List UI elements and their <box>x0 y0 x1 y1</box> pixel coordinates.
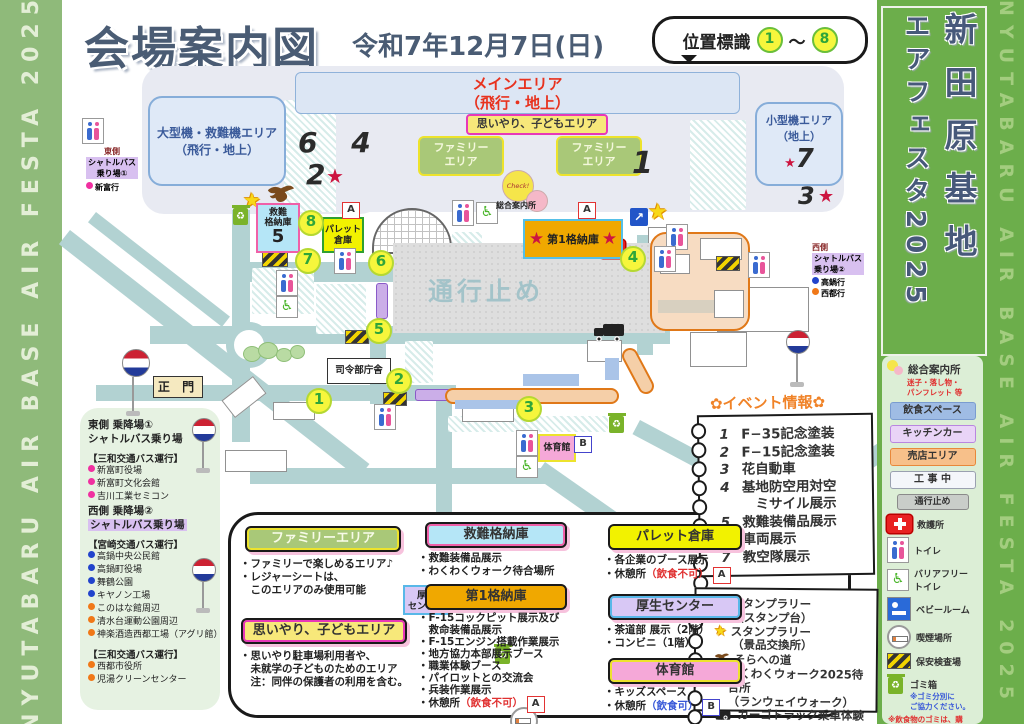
large-area-line2: （飛行・地上） <box>150 141 284 158</box>
badge-a: A <box>342 202 360 219</box>
marker-range-end: 8 <box>812 27 838 53</box>
family-line1: ファミリー <box>558 141 640 155</box>
food-trash-note: ※飲食物のゴミは、購 入されたお店で回収し ております。 <box>888 715 977 724</box>
barrier-free-row: ♿ バリアフリートイレ <box>887 567 978 593</box>
family-area-label: ファミリー エリア <box>556 136 642 176</box>
west-panel-title2: シャトルバス乗り場 <box>88 519 187 531</box>
legend-item: 未就学の子どものためのエリア <box>240 663 398 676</box>
festival-map-poster: NYUTABARU AIR BASE AIR FESTA 2025 会場案内図 … <box>0 0 1024 724</box>
legend-pallet-title: パレット倉庫 <box>608 524 742 550</box>
legend-item-rest: ・休憩所（飲食可） B <box>604 699 720 716</box>
toilet-icon <box>452 200 474 226</box>
truck-icon <box>592 324 624 342</box>
position-marker-6: 6 <box>368 250 394 276</box>
family-line1: ファミリー <box>420 141 502 155</box>
east-shuttle-label: 東側 シャトルバス 乗り場① 新富行 <box>86 146 138 193</box>
main-area-line1: メインエリア <box>296 75 739 94</box>
legend-item: ・F-15コックピット展示及び <box>418 612 559 625</box>
bus-stop-item: 清水台運動公園周辺 <box>88 616 212 629</box>
toilet-icon <box>654 246 676 272</box>
right-edge-text: NYUTABARU AIR BASE AIR FESTA 2025 <box>995 0 1017 724</box>
security-row: 保安検査場 <box>887 653 978 669</box>
gym-box: 体育館 <box>538 434 576 462</box>
main-gate-box: 正 門 <box>153 376 203 398</box>
small-aircraft-area-box: 小型機エリア （地上） ★7 <box>755 102 843 186</box>
banner-title: 新田原基地 エアフェスタ2025 <box>884 12 982 348</box>
road-closed-text: 通行止め <box>428 272 544 308</box>
legend-kousei-title: 厚生センター <box>608 594 742 620</box>
event-info-box: 1F−35記念塗装 2F−15記念塗装 3花自動車 4基地防空用対空 ミサイル展… <box>697 413 875 577</box>
legend-item: ・F-15エンジン搭載作業展示 <box>418 636 559 649</box>
event-info-title: ✿イベント情報✿ <box>706 391 829 414</box>
rescue-number: 5 <box>258 228 298 246</box>
event-item: 4基地防空用対空 <box>718 477 866 497</box>
first-aid-icon <box>887 515 912 533</box>
building <box>690 332 747 367</box>
position-marker-legend-bubble: 位置標識 1 ～ 8 <box>652 16 868 64</box>
legend-item-rest: ・休憩所（飲食不可） A <box>418 696 545 713</box>
legend-item: ・キッズスペース <box>604 686 687 699</box>
legend-item: ・ファミリーで楽しめるエリア♪ <box>240 558 393 571</box>
shop-area-chip: 売店エリア <box>890 448 976 466</box>
info-office-row: 総合案内所 <box>887 360 978 378</box>
legend-item: 救命装備品展示 <box>418 624 502 637</box>
apron-hatch <box>690 120 746 210</box>
rescue-line1: 救難 <box>258 208 298 218</box>
building-annex <box>658 300 714 313</box>
east-dest: 新富行 <box>86 182 138 193</box>
position-marker-label: 位置標識 <box>683 28 751 53</box>
map-number-1: 1 <box>632 146 653 181</box>
legend-item: ・地方協力本部展示ブース <box>418 648 543 661</box>
small-area-line1: 小型機エリア <box>757 112 841 128</box>
toilet-row: トイレ <box>887 537 978 563</box>
legend-item: ・パイロットとの交流会 <box>418 672 533 685</box>
bus-stop-item: 児湯クリーンセンター <box>88 674 212 687</box>
bus-stop-sign <box>122 349 144 416</box>
toilet-icon <box>334 248 356 274</box>
hazard-stripe <box>716 256 740 271</box>
legend-item: ・レジャーシートは、 <box>240 571 344 584</box>
legend-item: ・兵装作業展示 <box>418 684 492 697</box>
bus-stop-item: 西都市役所 <box>88 661 212 674</box>
kitchen-car-chip: キッチンカー <box>890 425 976 443</box>
bus-stop-sign <box>192 558 214 613</box>
west-operator1: 【宮崎交通バス運行】 <box>88 537 212 551</box>
right-edge-banner: NYUTABARU AIR BASE AIR FESTA 2025 <box>988 0 1024 724</box>
west-line3: 乗り場② <box>812 264 864 275</box>
star-icon: ★ <box>648 200 668 225</box>
legend-item: ・職業体験ブース <box>418 660 501 673</box>
direction-arrow-sign: ↗ <box>630 208 648 226</box>
legend-item: ・コンビニ（1階） <box>604 637 695 650</box>
omoiyari-area-label: 思いやり、子どもエリア <box>466 114 608 135</box>
left-edge-banner: NYUTABARU AIR BASE AIR FESTA 2025 <box>0 0 62 724</box>
map-number-7: 7 <box>796 144 814 174</box>
small-area-star7: ★7 <box>757 144 841 174</box>
west-operator2: 【三和交通バス運行】 <box>88 647 212 661</box>
legend-hangar1-title: 第1格納庫 <box>425 584 567 610</box>
building <box>225 450 287 472</box>
position-marker-1: 1 <box>306 388 332 414</box>
banner-line2: エアフェスタ2025 <box>897 12 934 348</box>
apron-hatch <box>316 284 366 334</box>
legend-item-rest: ・休憩所（飲食不可） A <box>604 567 731 584</box>
rescue-hangar-box: 救難 格納庫 5 <box>256 203 300 253</box>
position-marker-7: 7 <box>295 248 321 274</box>
large-area-line1: 大型機・救難機エリア <box>150 124 284 141</box>
bus-stop-sign <box>192 418 214 473</box>
legend-item: ・思いやり駐車場利用者や、 <box>240 650 376 663</box>
event-item: ミサイル展示 <box>718 495 866 515</box>
marker-range-tilde: ～ <box>789 28 806 53</box>
west-dest1: 高鍋行 <box>812 277 864 288</box>
east-line3: 乗り場① <box>86 168 138 179</box>
baby-room-row: ベビールーム <box>887 597 978 621</box>
star-icon: ★ <box>326 164 344 188</box>
food-space-chip: 飲食スペース <box>890 402 976 420</box>
toilet-icon <box>516 430 538 456</box>
west-line2: シャトルバス <box>812 253 864 264</box>
position-marker-3: 3 <box>516 396 542 422</box>
west-dest2: 西都行 <box>812 288 864 299</box>
toilet-icon <box>748 252 770 278</box>
position-marker-5: 5 <box>366 318 392 344</box>
star-icon: ★ <box>602 229 617 249</box>
balloon-icon <box>887 360 903 378</box>
west-panel-title1: 西側 乗降場② <box>88 504 212 518</box>
toilet-icon <box>887 537 909 563</box>
event-date: 令和7年12月7日(日) <box>352 26 604 63</box>
east-line2: シャトルバス <box>86 157 138 168</box>
parking-strip <box>605 358 619 380</box>
info-office-title: 総合案内所 <box>908 362 961 377</box>
smoking-row: 喫煙場所 <box>887 625 978 649</box>
parking-strip <box>523 374 579 386</box>
legend-rescue-title: 救難格納庫 <box>425 522 567 548</box>
wheelchair-icon: ♿ <box>516 456 538 478</box>
small-area-line2: （地上） <box>757 128 841 144</box>
kitchen-car-strip <box>376 283 388 319</box>
legend-gym-title: 体育館 <box>608 658 742 684</box>
road-segment <box>250 468 550 484</box>
hq-building-box: 司令部庁舎 <box>327 358 391 384</box>
legend-item: このエリアのみ使用可能 <box>240 584 366 597</box>
left-edge-text: NYUTABARU AIR BASE AIR FESTA 2025 <box>19 0 44 724</box>
tree <box>258 342 278 359</box>
legend-family-title: ファミリーエリア <box>245 526 401 552</box>
bus-stop-item: 神楽酒造西都工場（アグリ館） <box>88 629 212 642</box>
bus-stop-sign <box>786 330 808 387</box>
family-line2: エリア <box>420 155 502 169</box>
wheelchair-icon: ♿ <box>887 569 909 591</box>
info-office-label: 総合案内所 <box>496 200 536 211</box>
large-aircraft-area-box: 大型機・救難機エリア （飛行・地上） <box>148 96 286 186</box>
baby-room-icon <box>887 597 911 621</box>
event-item: 3花自動車 <box>718 460 866 480</box>
hangar1-label: 第1格納庫 <box>547 231 599 247</box>
bus-stop-item: 新富町文化会館 <box>88 478 212 491</box>
tree <box>290 345 305 359</box>
star-icon: ★ <box>784 156 796 171</box>
badge-b: B <box>574 436 592 453</box>
legend-item: ・各企業のブース展示 <box>604 554 708 567</box>
legend-item: ・救難装備品展示 <box>418 552 502 565</box>
position-marker-8: 8 <box>298 210 324 236</box>
wheelchair-icon: ♿ <box>276 296 298 318</box>
badge-b: B <box>702 699 720 716</box>
map-number-6-4: 6 4 <box>298 126 383 159</box>
hazard-stripe <box>262 252 288 267</box>
star-icon: ★ <box>714 625 727 639</box>
bus-stop-item: 吉川工業セミコン <box>88 491 212 504</box>
toilet-icon <box>82 118 104 144</box>
main-area-box: メインエリア （飛行・地上） <box>295 72 740 114</box>
stamp-item: カーゴトラック乗車体験 <box>713 709 871 724</box>
event-item: 2F−15記念塗装 <box>717 442 865 462</box>
event-item: 7教空隊展示 <box>719 547 867 567</box>
toilet-icon <box>374 404 396 430</box>
legend-item: ・わくわくウォーク待合場所 <box>418 565 555 578</box>
map-number-2: 2 <box>306 158 325 191</box>
main-area-line2: （飛行・地上） <box>296 94 739 113</box>
smoking-area-icon <box>887 625 911 649</box>
position-marker-2: 2 <box>386 368 412 394</box>
family-line2: エリア <box>558 155 640 169</box>
map-key-sidebar: 総合案内所 迷子・落し物・ パンフレット 等 飲食スペース キッチンカー 売店エ… <box>882 356 983 724</box>
star-icon: ★ <box>818 186 834 207</box>
pallet-line2: 倉庫 <box>324 236 362 247</box>
construction-chip: 工 事 中 <box>890 471 976 489</box>
legend-omoiyari-title: 思いやり、子どもエリア <box>241 618 407 644</box>
event-item: 1F−35記念塗装 <box>717 425 865 445</box>
star-icon: ★ <box>529 229 544 249</box>
family-area-label: ファミリー エリア <box>418 136 504 176</box>
badge-a: A <box>578 202 596 219</box>
west-line1: 西側 <box>812 242 864 253</box>
trash-icon: ♻ <box>232 204 250 226</box>
shuttle-bus-panel: 東側 乗降場① シャトルバス乗り場 【三和交通バス運行】 新富町役場 新富町文化… <box>80 408 220 710</box>
west-shuttle-label: 西側 シャトルバス 乗り場② 高鍋行 西都行 <box>812 242 864 299</box>
legend-item: ・茶道部 展示（2階） <box>604 624 709 637</box>
building <box>714 290 744 318</box>
map-number-3: 3 <box>798 182 815 210</box>
badge-a: A <box>527 696 545 713</box>
info-office-note: 迷子・落し物・ パンフレット 等 <box>907 378 980 397</box>
first-aid-row: 救護所 <box>887 515 978 533</box>
eagle-icon <box>266 184 296 208</box>
pallet-line1: パレット <box>324 225 362 236</box>
hangar1-box: ★ 第1格納庫 ★ <box>523 219 623 259</box>
banner-line1: 新田原基地 <box>934 12 982 348</box>
east-line1: 東側 <box>86 146 138 157</box>
trash-row: ♻ ゴミ箱 ※ゴミ分別にご協力ください。 <box>887 673 978 711</box>
trash-icon: ♻ <box>608 412 626 434</box>
wheelchair-icon: ♿ <box>476 202 498 224</box>
security-check-icon <box>887 653 911 669</box>
legend-item: 注：同伴の保護者の利用を含む。 <box>240 676 408 689</box>
road-closed-chip: 通行止め <box>897 494 969 510</box>
trash-icon: ♻ <box>887 673 905 695</box>
marker-range-start: 1 <box>757 27 783 53</box>
toilet-icon <box>276 270 298 296</box>
badge-a: A <box>713 567 731 584</box>
position-marker-4: 4 <box>620 246 646 272</box>
